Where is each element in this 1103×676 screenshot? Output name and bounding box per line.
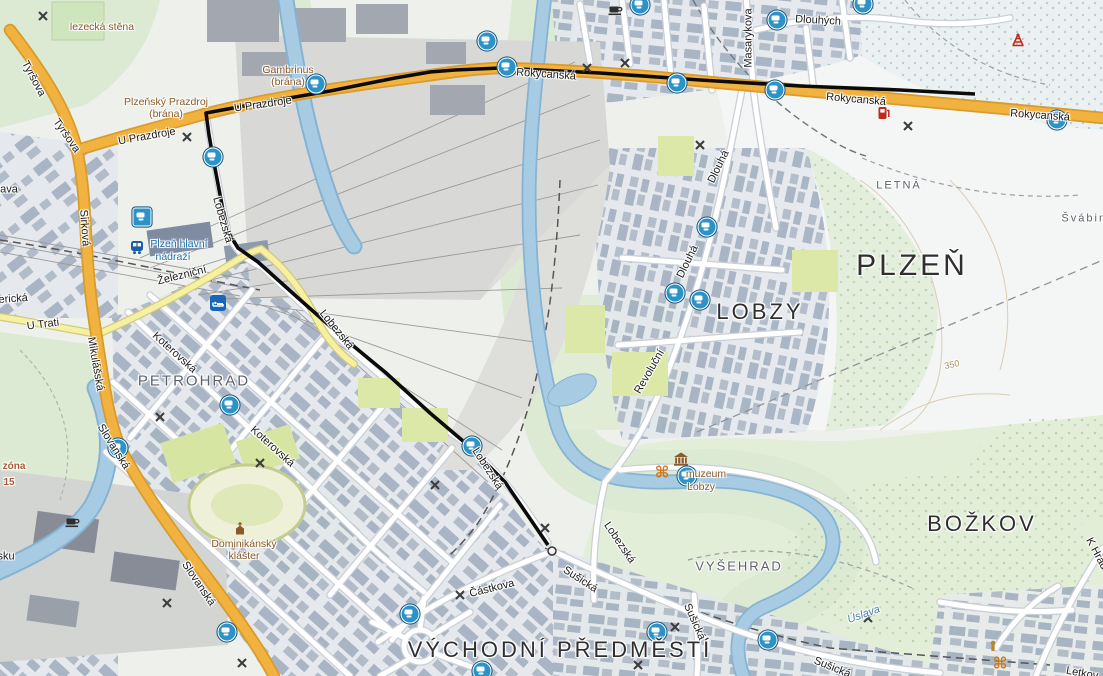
route-overlay xyxy=(0,0,1103,676)
route-end-marker[interactable] xyxy=(548,547,556,555)
map-canvas[interactable]: ⌘⌘ PLZEŇLOBZYBOŽKOVVÝCHODNÍ PŘEDMĚSTÍPET… xyxy=(0,0,1103,676)
route-line[interactable] xyxy=(206,68,975,545)
